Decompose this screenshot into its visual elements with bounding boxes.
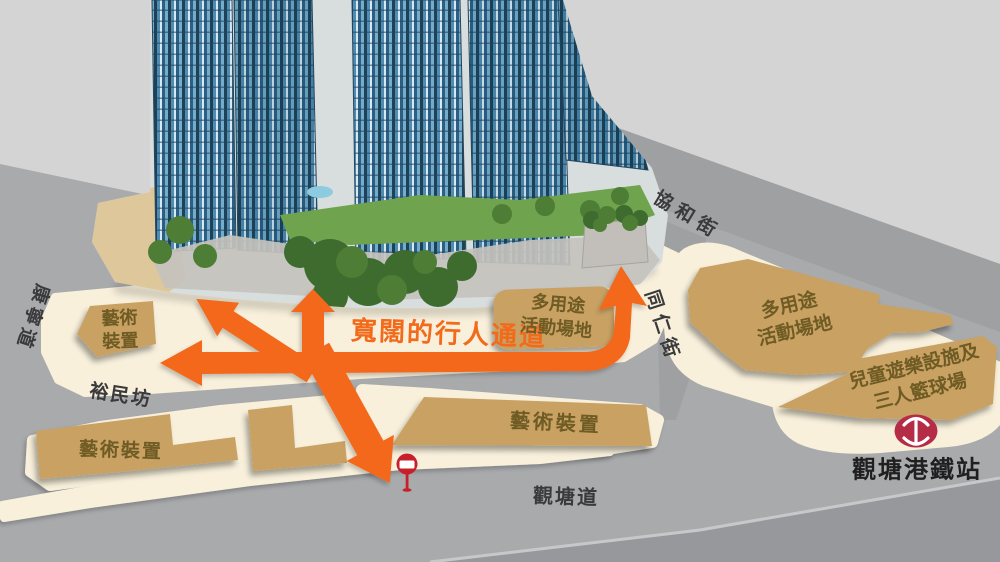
- feature-label-art-upper-left: 藝術 裝置: [101, 306, 139, 353]
- map-graphics: [0, 0, 1000, 562]
- planter: [582, 205, 648, 268]
- wide-walkway-annotation: 寬闊的行人通道: [350, 310, 547, 354]
- station-label-kwun-tong: 觀塘港鐵站: [852, 450, 982, 485]
- mtr-logo-icon: [895, 415, 938, 448]
- feature-label-art-lower-left: 藝術裝置: [79, 434, 164, 464]
- feature-label-line: 藝術: [101, 306, 138, 330]
- feature-label-line: 裝置: [102, 329, 139, 353]
- street-label-kwun-tong-road: 觀塘道: [533, 479, 600, 510]
- feature-label-art-lower-center: 藝術裝置: [509, 404, 602, 438]
- map-canvas: 康寧道 協和街 同仁街 裕民坊 觀塘道 寬闊的行人通道 藝術 裝置 多用途 活動…: [0, 0, 1000, 562]
- feature-label-venue-center: 多用途 活動場地: [519, 290, 595, 344]
